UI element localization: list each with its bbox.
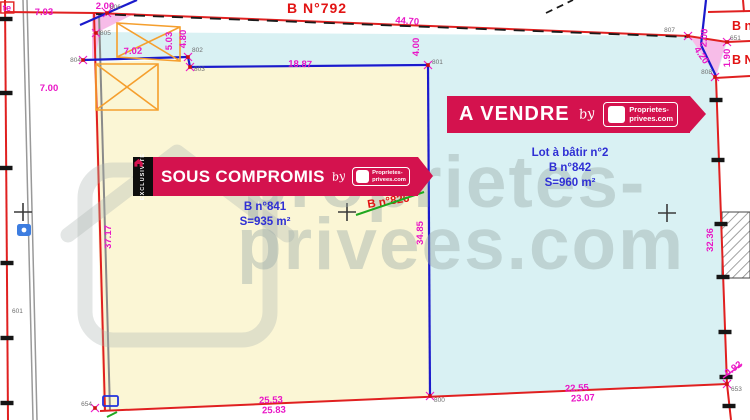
survey-point-label: 804	[70, 57, 81, 64]
lot1-area: S=935 m²	[198, 215, 332, 230]
status-text: A VENDRE	[459, 103, 570, 126]
survey-point-label: 806	[110, 4, 121, 11]
parcel-label-right-top: B n°	[732, 19, 750, 33]
parcel-label-top: B N°792	[287, 0, 347, 16]
site-plan: 7.03 2.00 7.00 7.02 5.03 4.80 44.70 4.00…	[0, 0, 750, 420]
survey-point-label: 651	[730, 35, 741, 42]
dimension-label: 44.70	[395, 15, 419, 28]
dimension-label: 5.03	[164, 32, 175, 51]
dimension-label: 7.03	[35, 7, 54, 18]
survey-drawing: 7.03 2.00 7.00 7.02 5.03 4.80 44.70 4.00…	[0, 0, 750, 420]
banner-arrow	[690, 96, 706, 132]
by-text: by	[578, 106, 596, 123]
banner-arrow	[418, 157, 433, 195]
dimension-label: 7.00	[40, 83, 59, 94]
brand-name-line2: privees.com	[629, 115, 673, 124]
dimension-label: 4.00	[411, 38, 422, 57]
survey-point-label: 803	[194, 66, 205, 73]
dimension-label: 4.80	[178, 30, 189, 49]
dimension-label: 32.36	[705, 228, 716, 252]
dimension-label: 7.02	[123, 46, 142, 58]
lot1-parcel: B n°841	[198, 200, 332, 215]
by-text: by	[331, 169, 346, 184]
corner-label: te	[3, 3, 11, 14]
brand-logo: Proprietes- privees.com	[352, 167, 410, 186]
survey-point-label: 654	[81, 401, 92, 408]
lot2-area: S=960 m²	[503, 176, 637, 191]
dimension-label: 23.07	[571, 392, 595, 404]
lot2-info: Lot à bâtir n°2 B n°842 S=960 m²	[503, 146, 637, 191]
brand-name-line1: Proprietes-	[372, 170, 406, 177]
survey-point-label: 601	[12, 308, 23, 315]
survey-point-label: 807	[664, 27, 675, 34]
dimension-label: 37.17	[103, 225, 114, 249]
house-icon	[608, 106, 625, 123]
parcel-label-right-mid: B N°	[732, 53, 750, 67]
survey-point-label: 800	[434, 397, 445, 404]
lot2-name: Lot à bâtir n°2	[503, 146, 637, 161]
survey-point-label: 653	[731, 386, 742, 393]
status-banner-a-vendre: A VENDRE by Proprietes- privees.com	[447, 96, 706, 133]
brand-name-line2: privees.com	[372, 177, 406, 184]
green-mark	[107, 412, 117, 417]
dimension-label: 18.87	[288, 59, 312, 71]
survey-point-label: 805	[100, 30, 111, 37]
lot1-area	[94, 60, 430, 410]
status-banner-sous-compromis: EXCLUSIVITE SOUS COMPROMIS by Proprietes…	[133, 157, 433, 196]
dimension-label: 34.85	[415, 220, 426, 244]
brand-logo: Proprietes- privees.com	[603, 102, 678, 127]
house-icon	[356, 170, 369, 183]
dimension-label: 25.83	[262, 405, 286, 417]
survey-point-label: 808	[701, 69, 712, 76]
lot2-parcel: B n°842	[503, 161, 637, 176]
survey-point-label: 802	[192, 47, 203, 54]
survey-point-label: 801	[432, 59, 443, 66]
cross-mark	[14, 203, 32, 221]
status-text: SOUS COMPROMIS	[161, 167, 325, 187]
